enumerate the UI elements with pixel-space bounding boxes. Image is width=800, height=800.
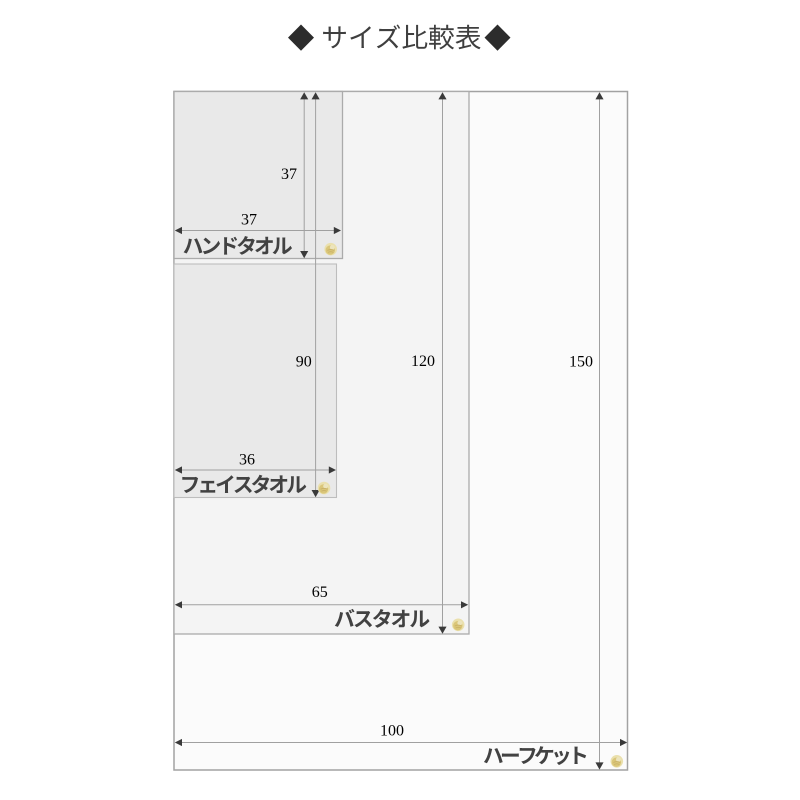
svg-text:37: 37 bbox=[281, 166, 297, 183]
svg-text:120: 120 bbox=[411, 353, 435, 370]
svg-text:37: 37 bbox=[241, 212, 257, 229]
svg-text:150: 150 bbox=[569, 353, 593, 370]
svg-text:36: 36 bbox=[239, 452, 255, 469]
svg-text:90: 90 bbox=[296, 353, 312, 370]
svg-text:100: 100 bbox=[380, 723, 404, 740]
svg-text:65: 65 bbox=[312, 584, 328, 601]
